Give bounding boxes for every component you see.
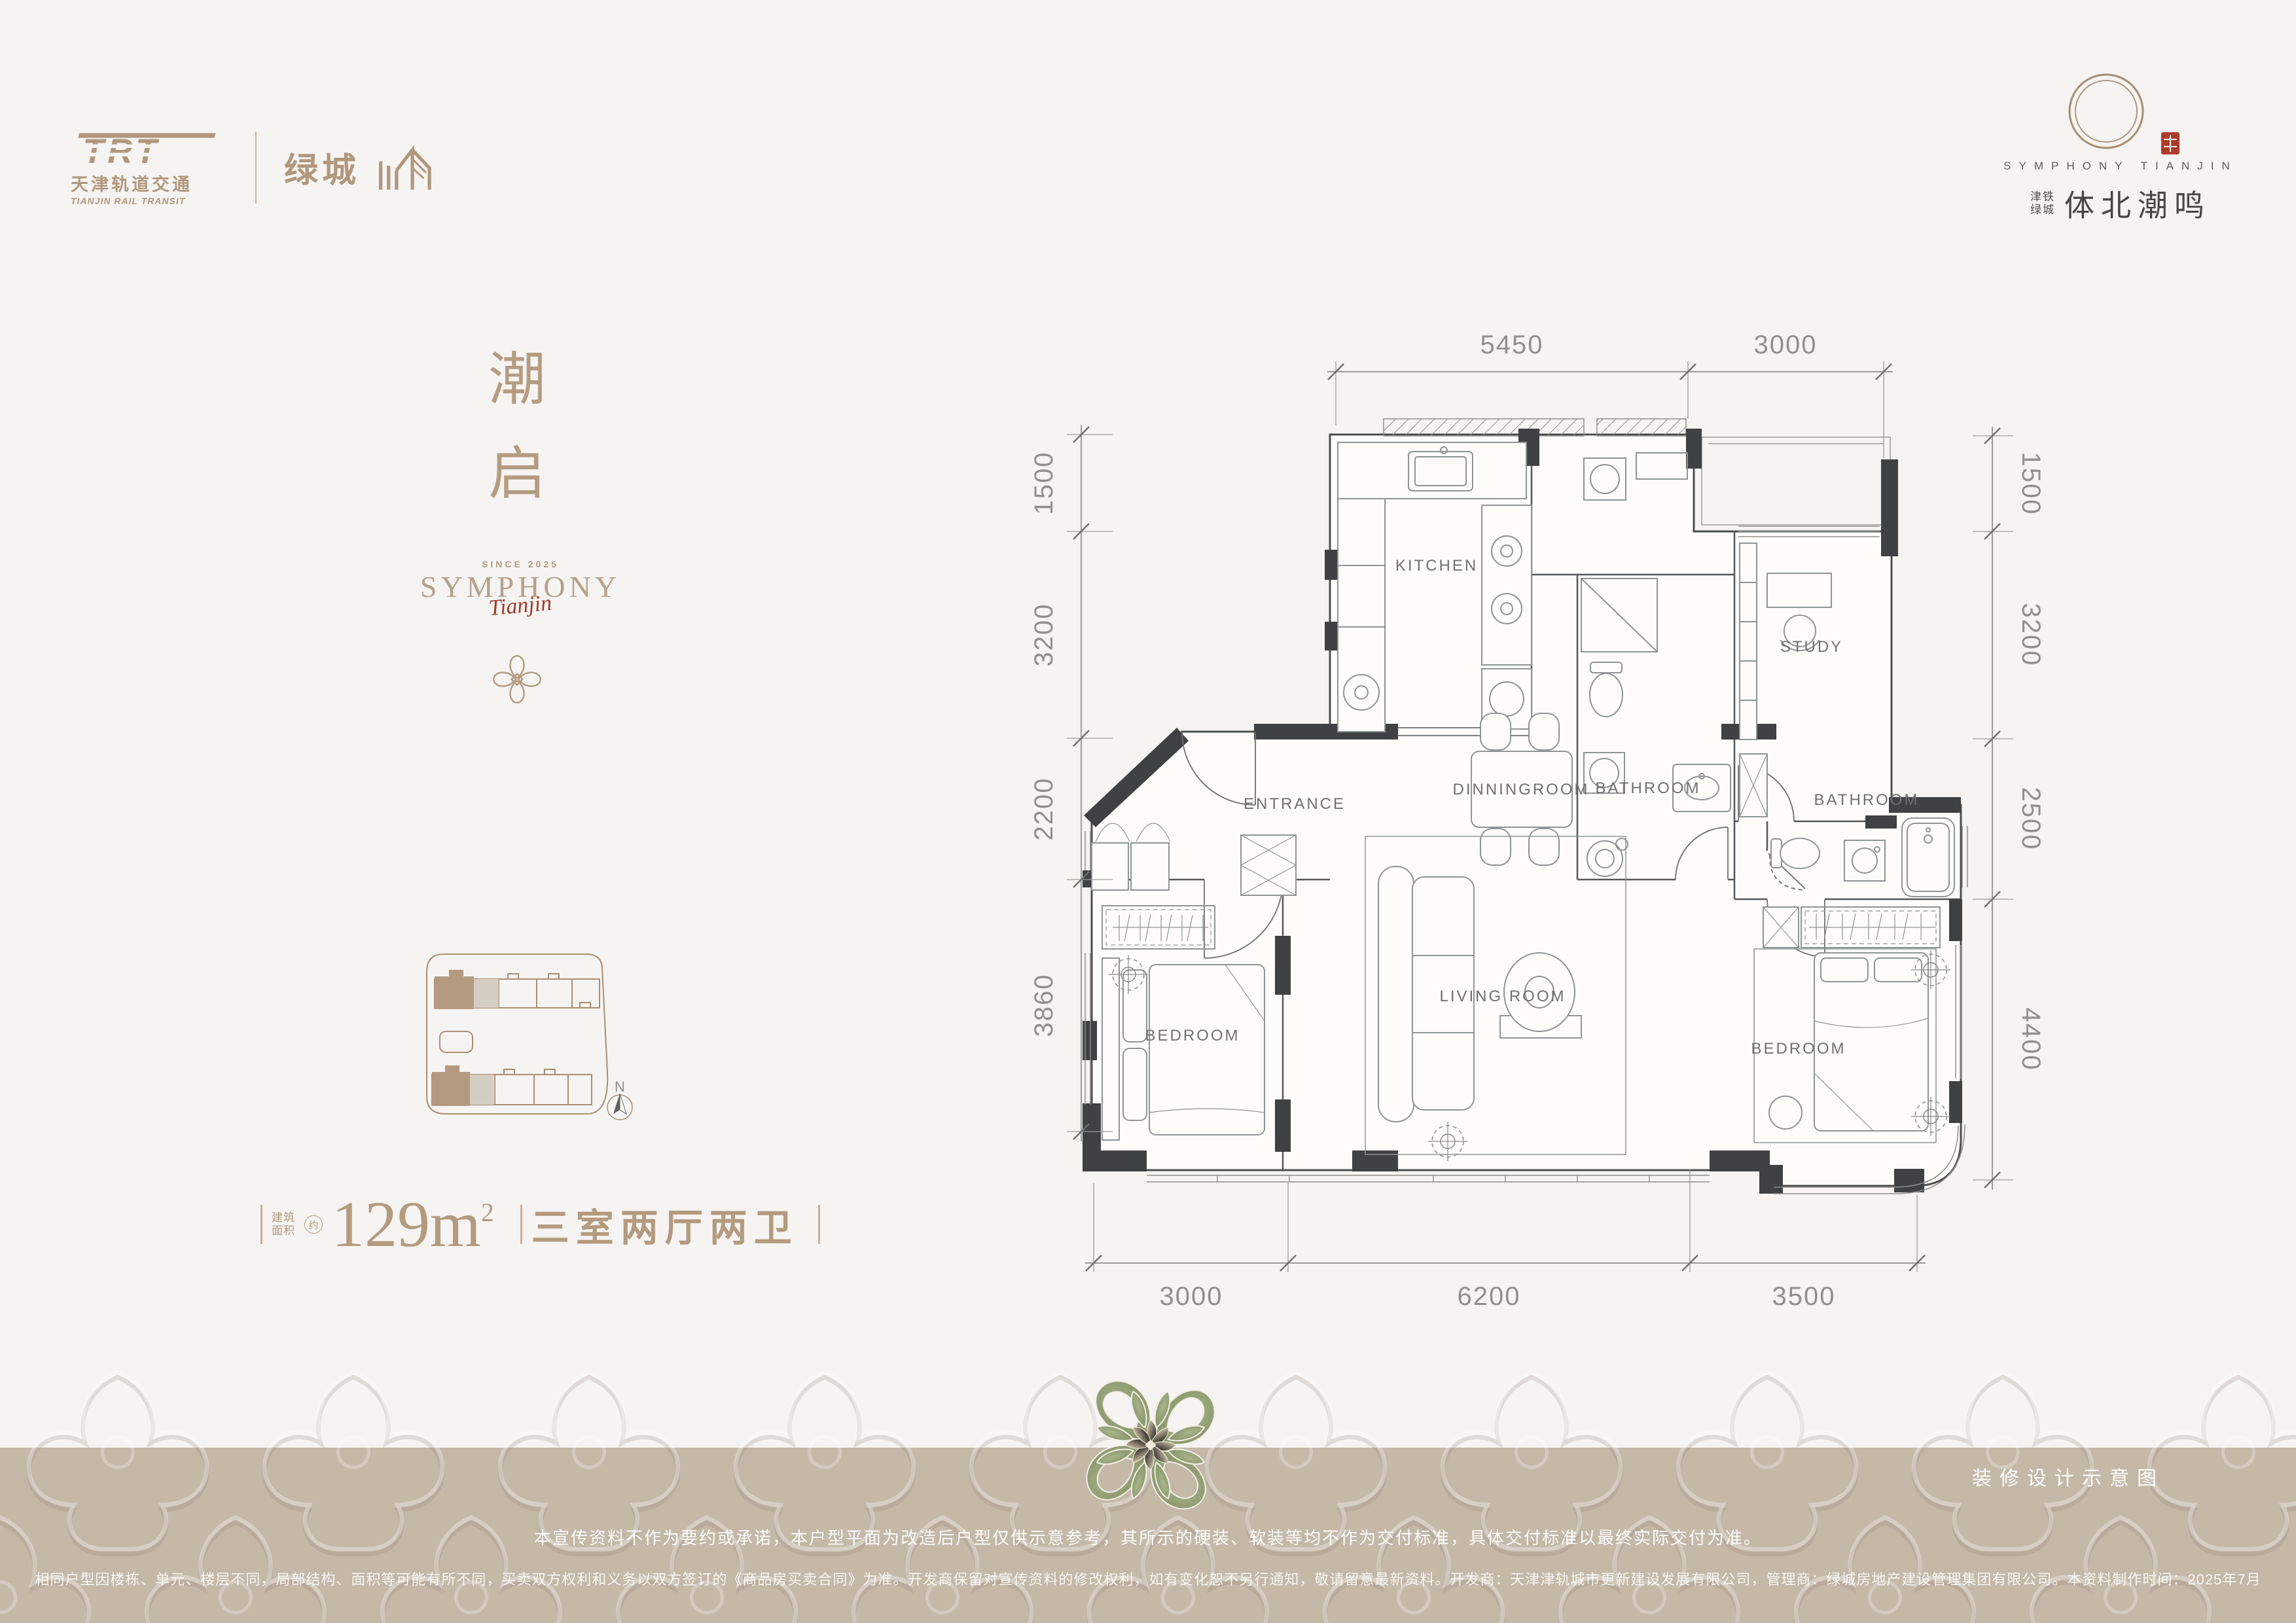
area-value: 129m2 (332, 1195, 494, 1254)
greentown-logo-icon (370, 142, 439, 193)
brand-emblem (1990, 68, 2251, 160)
room-label-entrance: ENTRANCE (1244, 795, 1346, 813)
spec-divider (260, 1205, 262, 1244)
dim-label: 1500 (2017, 452, 2045, 516)
room-label-living: LIVING ROOM (1439, 988, 1566, 1005)
room-label-bathroom1: BATHROOM (1596, 779, 1701, 797)
trt-logo-block: TRT 天津轨道交通 TIANJIN RAIL TRANSIT (71, 128, 228, 206)
dim-label: 4400 (2017, 1008, 2045, 1071)
brand-title-cn: 体北潮鸣 (2064, 182, 2211, 225)
trt-chinese-name: 天津轨道交通 (71, 170, 228, 196)
site-plan: N (427, 954, 632, 1120)
header-right: SYMPHONY TIANJIN 津铁 绿城 体北潮鸣 (1990, 68, 2251, 225)
area-approx-badge: 约 (304, 1215, 323, 1234)
brand-sub-line2: 绿城 (2030, 204, 2055, 217)
dim-label: 3000 (1160, 1282, 1223, 1311)
north-label: N (615, 1079, 625, 1095)
brand-block: SINCE 2025 SYMPHONY Tianjin (393, 559, 648, 618)
trt-logo-icon: TRT (71, 128, 228, 170)
dims-right (1973, 427, 2013, 1190)
dim-label: 2200 (1030, 777, 1058, 841)
plan-caption: 装修设计示意图 (1972, 1462, 2164, 1491)
trt-english-name: TIANJIN RAIL TRANSIT (71, 196, 228, 206)
north-compass-icon: N (607, 1079, 632, 1120)
room-label-kitchen: KITCHEN (1395, 557, 1478, 575)
knot-icon (492, 654, 542, 704)
dim-label: 2500 (2017, 787, 2045, 851)
room-label-bathroom2: BATHROOM (1814, 791, 1920, 809)
platform (1702, 437, 1890, 525)
slogan-char-top: 潮 (486, 352, 548, 410)
area-spec-row: 建筑 面积 约 129m2 三室两厅两卫 (260, 1195, 820, 1254)
dim-label: 3000 (1754, 330, 1818, 359)
spec-divider (520, 1205, 522, 1244)
greentown-logo-block: 绿城 (284, 142, 439, 193)
floor-plan: KITCHEN DINNINGROOM BATHROOM STUDY ENTRA… (1030, 330, 2045, 1311)
room-label-study: STUDY (1780, 638, 1843, 656)
brand-title-cn-row: 津铁 绿城 体北潮鸣 (1990, 182, 2251, 225)
spec-divider (818, 1205, 820, 1244)
disclaimer-line-1: 本宣传资料不作为要约或承诺，本户型平面为改造后户型仅供示意参考，其所示的硬装、软… (0, 1525, 2296, 1549)
brand-title-en: SYMPHONY TIANJIN (1990, 160, 2251, 173)
area-superscript: 2 (481, 1198, 494, 1227)
trt-acronym: TRT (83, 132, 161, 170)
dim-label: 1500 (1030, 452, 1058, 515)
dim-label: 5450 (1480, 330, 1544, 359)
header-divider (255, 132, 257, 204)
header-left: TRT 天津轨道交通 TIANJIN RAIL TRANSIT 绿城 (71, 128, 439, 206)
area-label: 建筑 面积 (272, 1211, 295, 1238)
layout-spec: 三室两厅两卫 (531, 1197, 798, 1252)
dim-label: 3200 (2017, 603, 2045, 667)
slogan-char-bottom: 启 (486, 446, 548, 504)
since-label: SINCE 2025 (393, 559, 648, 569)
dim-label: 3200 (1030, 603, 1058, 667)
greentown-name: 绿城 (284, 143, 360, 192)
brand-circle-icon (2070, 75, 2143, 148)
disclaimer-line-2: 相同户型因楼栋、单元、楼层不同，局部结构、面积等可能有所不同，买卖双方权利和义务… (0, 1568, 2296, 1589)
floor-plan-canvas: N (0, 0, 2296, 1623)
brand-sub-line1: 津铁 (2030, 190, 2055, 204)
highlighted-building (435, 970, 474, 1009)
dim-label: 3500 (1772, 1282, 1836, 1311)
room-label-bedroom2: BEDROOM (1751, 1040, 1846, 1058)
brochure-page: N (0, 0, 2296, 1623)
dim-label: 3860 (1030, 974, 1058, 1037)
seal-icon (2161, 132, 2179, 154)
dim-label: 6200 (1458, 1282, 1521, 1311)
room-label-bedroom1: BEDROOM (1145, 1027, 1240, 1044)
room-label-dining: DINNINGROOM (1453, 781, 1590, 798)
